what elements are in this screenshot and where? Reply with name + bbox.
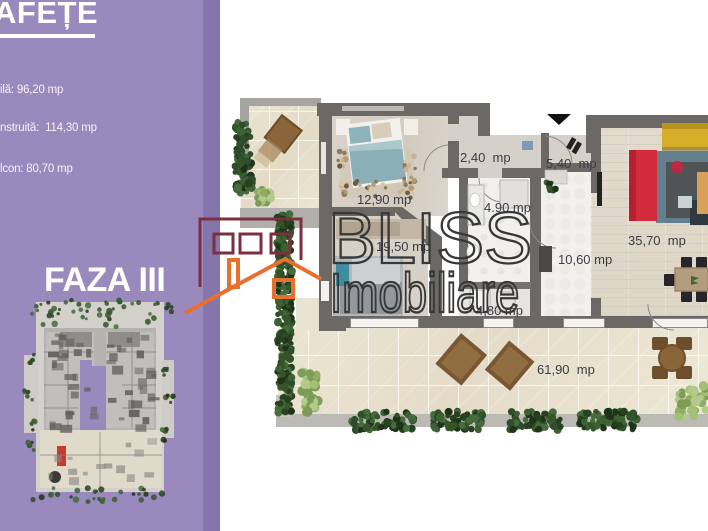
svg-text:Imobiliare: Imobiliare	[330, 262, 519, 324]
